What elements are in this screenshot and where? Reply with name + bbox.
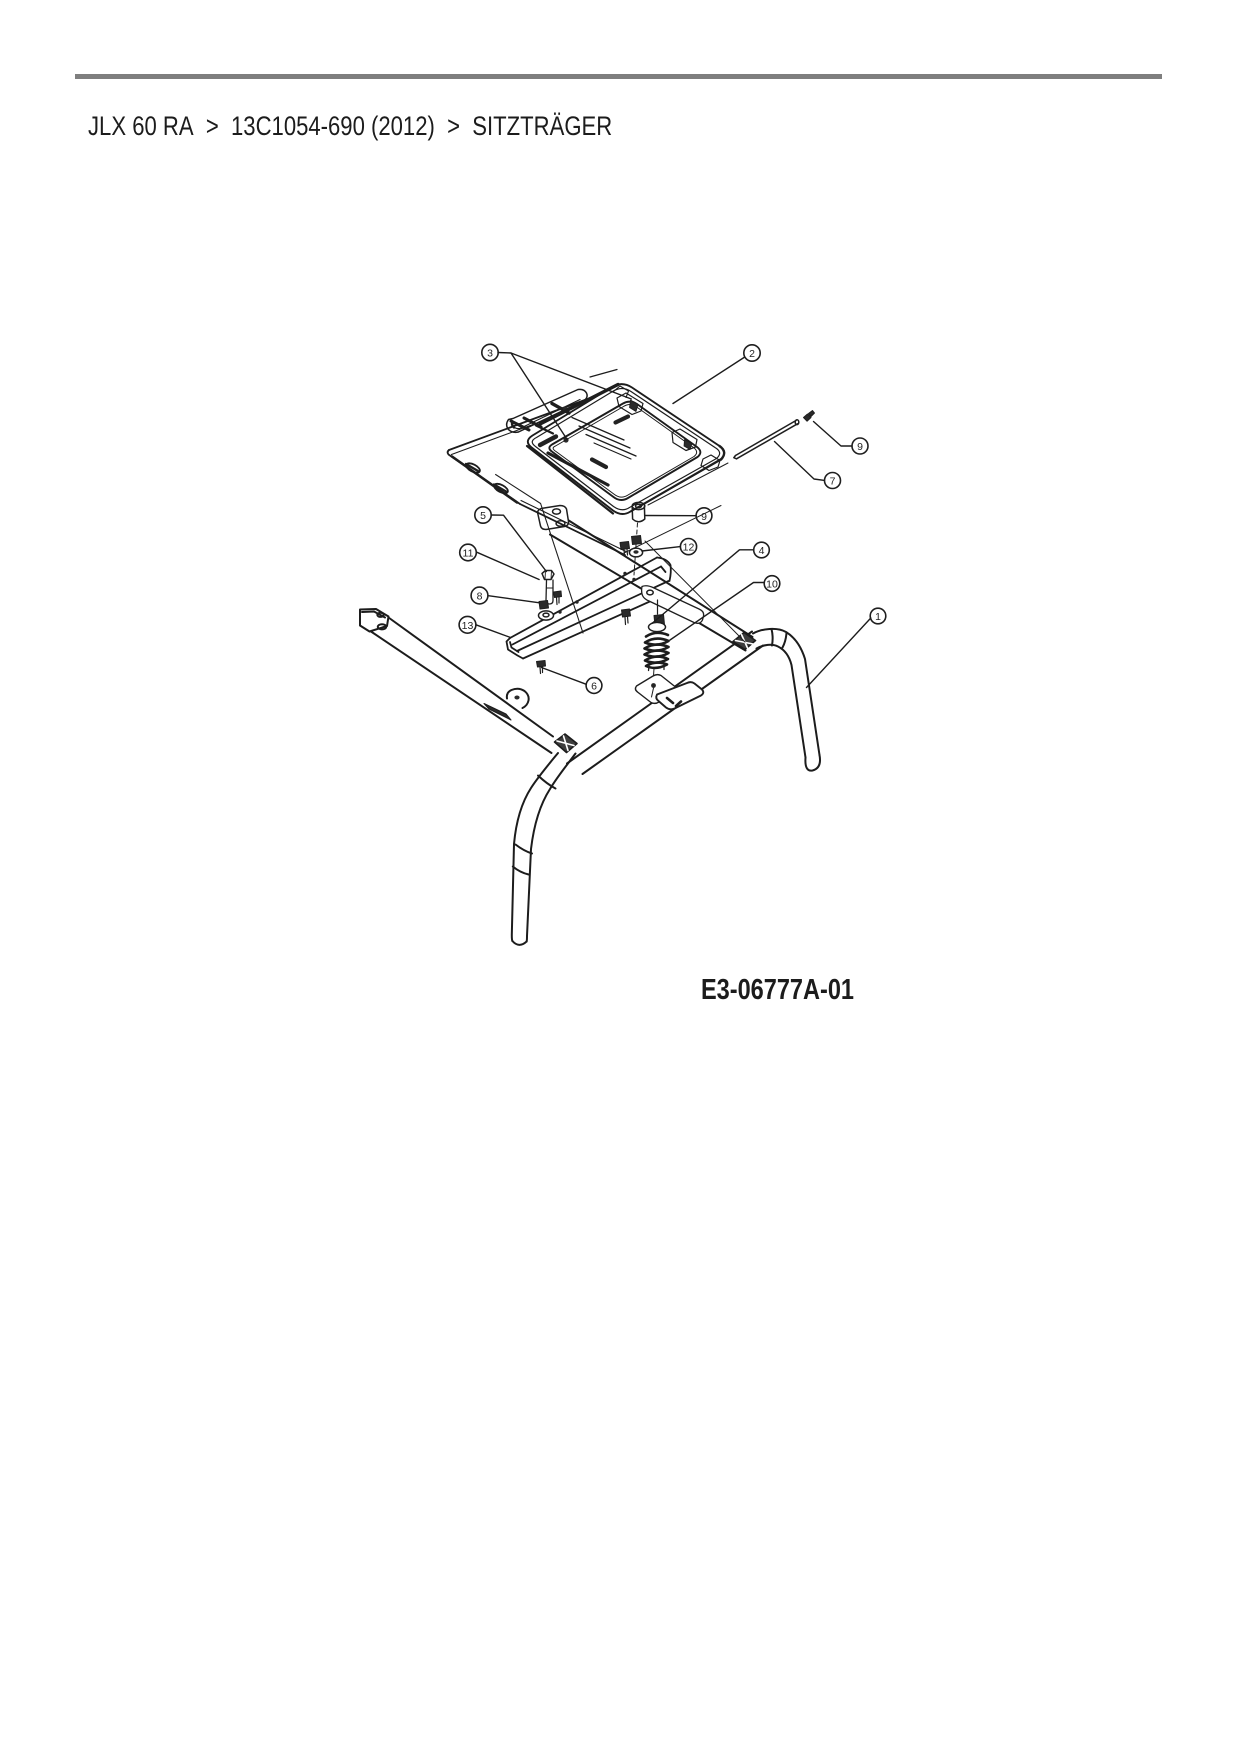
svg-text:10: 10 bbox=[766, 579, 778, 591]
svg-text:6: 6 bbox=[591, 681, 597, 693]
svg-text:7: 7 bbox=[830, 476, 836, 488]
svg-text:8: 8 bbox=[477, 591, 483, 603]
svg-text:3: 3 bbox=[487, 348, 493, 360]
svg-text:9: 9 bbox=[701, 511, 707, 523]
svg-text:9: 9 bbox=[857, 441, 863, 453]
svg-text:12: 12 bbox=[683, 542, 695, 554]
svg-text:2: 2 bbox=[749, 348, 755, 360]
svg-text:5: 5 bbox=[480, 510, 486, 522]
svg-text:13: 13 bbox=[462, 620, 474, 632]
svg-text:4: 4 bbox=[759, 545, 765, 557]
svg-text:11: 11 bbox=[463, 548, 474, 560]
svg-text:1: 1 bbox=[875, 611, 881, 623]
